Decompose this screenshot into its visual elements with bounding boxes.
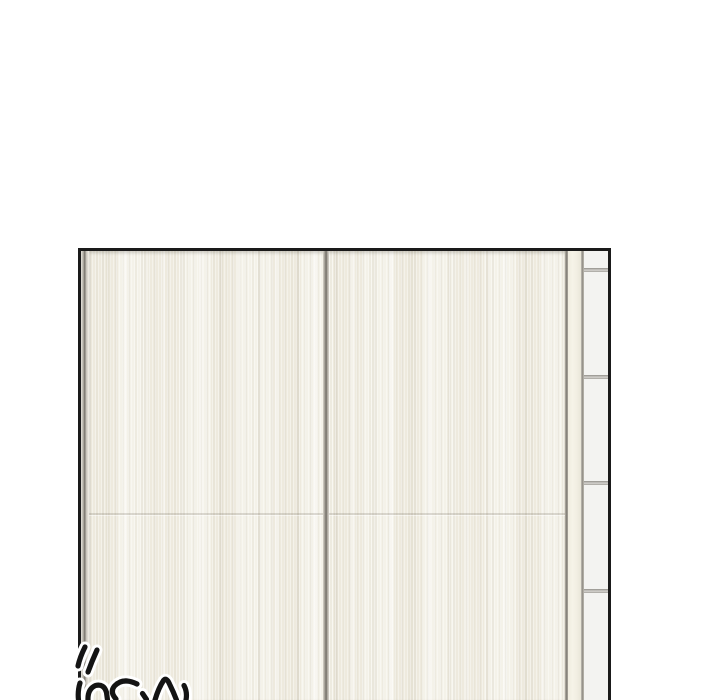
comic-page	[0, 0, 720, 700]
wardrobe-scene	[81, 251, 608, 700]
tile-grout-line	[584, 481, 608, 485]
tile-grout-line	[584, 589, 608, 593]
tiled-wall-strip	[584, 251, 608, 700]
tile-grout-line	[584, 268, 608, 272]
door-frame-left-edge	[81, 251, 89, 700]
door-center-divider	[323, 251, 329, 700]
side-casing-strip	[568, 251, 581, 700]
comic-panel	[78, 248, 611, 700]
tile-grout-line	[584, 375, 608, 379]
